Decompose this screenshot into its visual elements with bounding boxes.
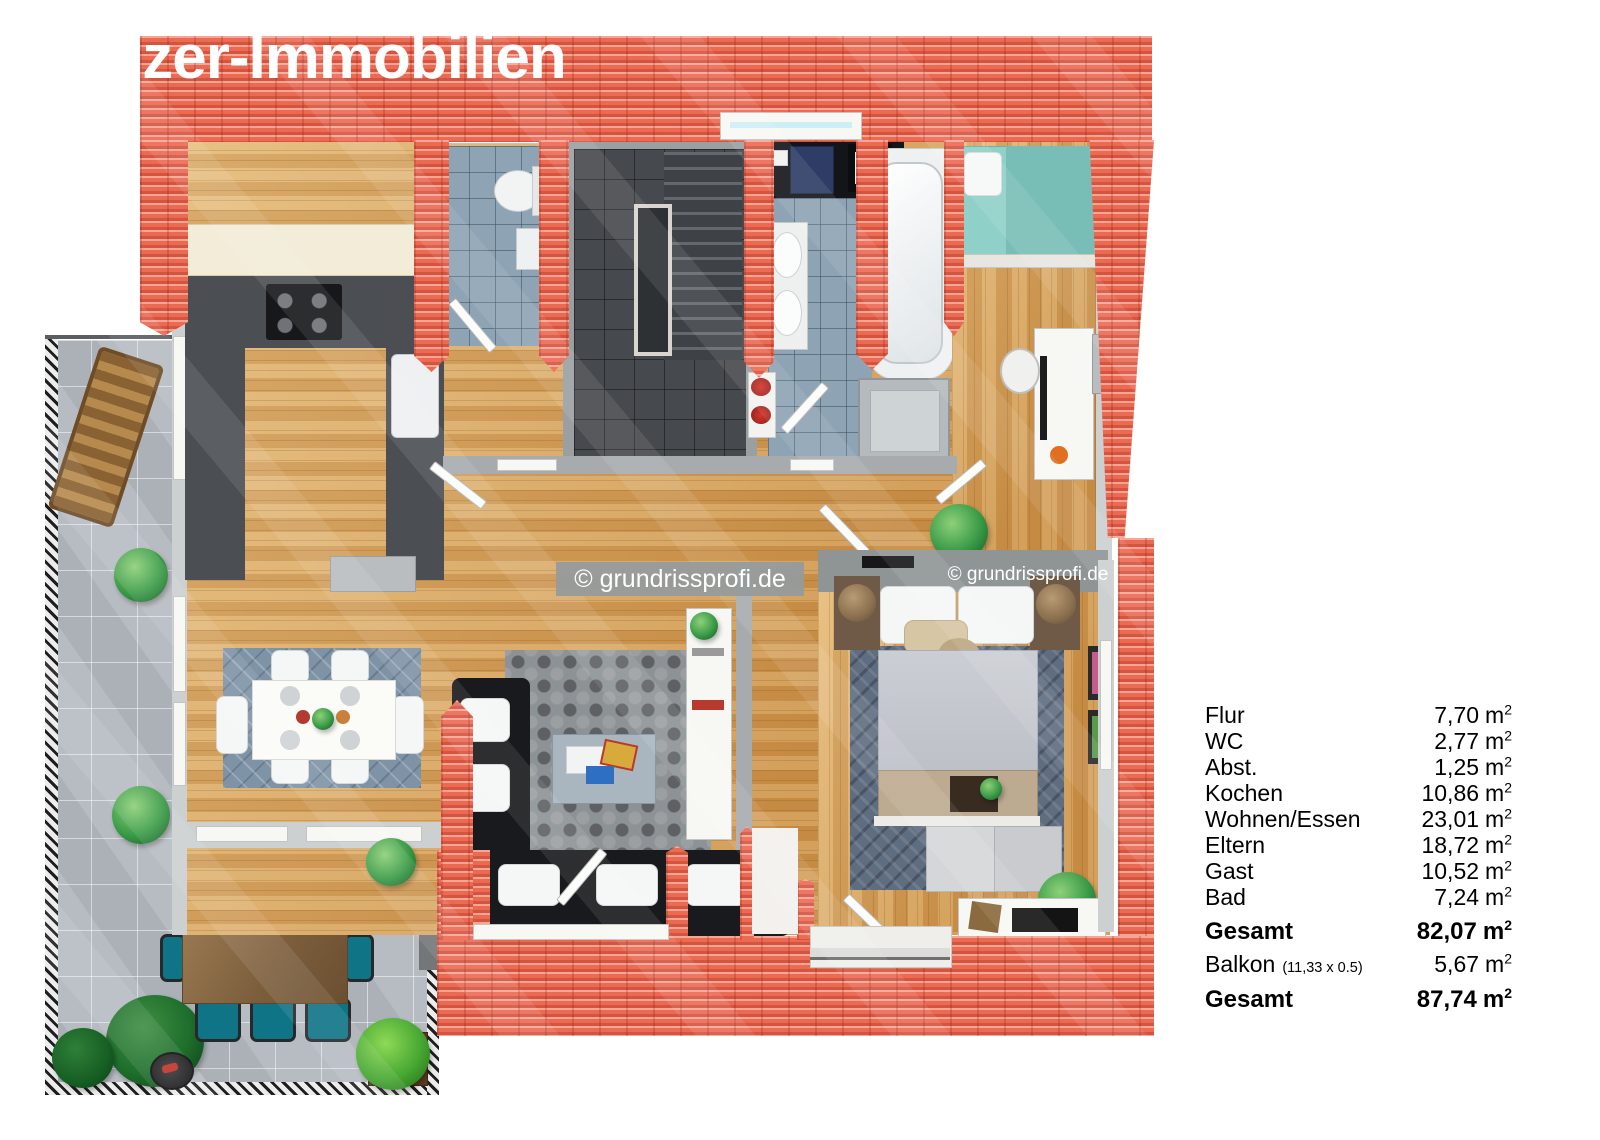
corridor-floor bbox=[752, 828, 798, 934]
roof-window-light bbox=[730, 122, 852, 128]
outdoor-chair bbox=[195, 998, 241, 1042]
washing-machine bbox=[790, 146, 834, 194]
roof-dormer-strip bbox=[666, 846, 688, 940]
area-row: Flur7,70m2 bbox=[1205, 702, 1512, 728]
living-window-sill bbox=[473, 924, 669, 940]
table-decor bbox=[296, 710, 310, 724]
basket bbox=[1036, 584, 1076, 624]
room-area: 10,52m2 bbox=[1421, 858, 1512, 884]
room-area: 7,24m2 bbox=[1434, 884, 1512, 910]
roof-strip bbox=[539, 140, 569, 372]
area-row: Gast10,52m2 bbox=[1205, 858, 1512, 884]
area-row: Abst.1,25m2 bbox=[1205, 754, 1512, 780]
balcony-railing bbox=[810, 948, 950, 960]
total-label: Gesamt bbox=[1205, 987, 1293, 1013]
ottoman bbox=[926, 826, 996, 892]
potted-plant bbox=[114, 548, 168, 602]
roof-strip bbox=[856, 140, 888, 370]
balcony-floor bbox=[810, 926, 952, 968]
wall-tv bbox=[862, 556, 914, 568]
sofa-pillow bbox=[596, 864, 658, 906]
table-plant bbox=[312, 708, 334, 730]
desk-chair bbox=[1000, 348, 1040, 394]
room-area: 1,25m2 bbox=[1434, 754, 1512, 780]
dining-armchair bbox=[392, 696, 424, 754]
room-label: Wohnen/Essen bbox=[1205, 806, 1361, 832]
potted-plant bbox=[52, 1028, 114, 1088]
outdoor-chair bbox=[344, 934, 374, 982]
room-area: 5,67m2 bbox=[1434, 951, 1512, 977]
area-row: Balkon(11,33 x 0.5)5,67m2 bbox=[1205, 951, 1512, 981]
hall-console bbox=[330, 556, 416, 592]
brand-watermark: lzer-Immobilien bbox=[126, 22, 566, 93]
place-setting bbox=[340, 730, 360, 750]
room-label: Bad bbox=[1205, 884, 1246, 910]
roof-left bbox=[140, 140, 188, 336]
door-opening bbox=[790, 459, 834, 471]
room-label: Abst. bbox=[1205, 754, 1257, 780]
sofa-pillow bbox=[498, 864, 560, 906]
table-decor bbox=[336, 710, 350, 724]
kitchen-cabinet-left bbox=[185, 348, 245, 580]
copyright-watermark: © grundrissprofi.de bbox=[946, 560, 1110, 590]
stair-void bbox=[634, 204, 672, 356]
flowers bbox=[751, 406, 771, 424]
room-label: Kochen bbox=[1205, 780, 1283, 806]
stair-steps bbox=[664, 152, 742, 360]
place-setting bbox=[280, 686, 300, 706]
roof-strip bbox=[744, 140, 774, 378]
room-label: WC bbox=[1205, 728, 1243, 754]
guest-bed-frame bbox=[960, 254, 1096, 268]
area-row-total: Gesamt87,74m2 bbox=[1205, 987, 1512, 1013]
terrace-edge-line bbox=[45, 335, 175, 339]
room-label: Balkon(11,33 x 0.5) bbox=[1205, 951, 1363, 981]
room-area: 2,77m2 bbox=[1434, 728, 1512, 754]
window bbox=[306, 826, 422, 842]
shower-tray bbox=[870, 390, 940, 452]
bed-blanket bbox=[878, 650, 1038, 784]
dining-armchair bbox=[216, 696, 248, 754]
dining-chair bbox=[271, 650, 309, 684]
roof-right-band bbox=[1118, 538, 1154, 940]
cooktop bbox=[266, 284, 342, 340]
flowers bbox=[751, 378, 771, 396]
roof-bottom bbox=[437, 936, 1154, 1036]
dining-chair bbox=[331, 650, 369, 684]
room-area: 10,86m2 bbox=[1421, 780, 1512, 806]
sofa-pillow bbox=[686, 864, 746, 906]
room-area: 23,01m2 bbox=[1421, 806, 1512, 832]
place-setting bbox=[340, 686, 360, 706]
terrace-railing-left bbox=[45, 338, 58, 1095]
outdoor-chair bbox=[305, 998, 351, 1042]
window bbox=[196, 826, 288, 842]
deco-box bbox=[968, 901, 1002, 933]
window bbox=[1100, 640, 1112, 770]
copyright-watermark-text: © grundrissprofi.de bbox=[574, 565, 786, 594]
room-label: Eltern bbox=[1205, 832, 1265, 858]
guest-bed-blanket bbox=[1006, 146, 1094, 258]
copyright-watermark-text: © grundrissprofi.de bbox=[948, 564, 1109, 586]
bath-sink bbox=[772, 290, 802, 336]
bath-sink bbox=[772, 232, 802, 278]
laptop bbox=[1012, 908, 1078, 932]
area-row: Wohnen/Essen23,01m2 bbox=[1205, 806, 1512, 832]
total-area: 82,07m2 bbox=[1417, 919, 1512, 945]
copyright-watermark: © grundrissprofi.de bbox=[556, 562, 804, 596]
bed-frame bbox=[874, 816, 1040, 826]
magazine bbox=[586, 766, 614, 784]
place-setting bbox=[280, 730, 300, 750]
window bbox=[173, 702, 186, 786]
area-row: WC2,77m2 bbox=[1205, 728, 1512, 754]
room-label: Gast bbox=[1205, 858, 1254, 884]
potted-plant bbox=[356, 1018, 430, 1090]
area-row-total: Gesamt82,07m2 bbox=[1205, 919, 1512, 945]
area-row: Eltern18,72m2 bbox=[1205, 832, 1512, 858]
roof-dormer-strip bbox=[441, 700, 473, 940]
outdoor-chair bbox=[250, 998, 296, 1042]
area-row: Bad7,24m2 bbox=[1205, 884, 1512, 910]
room-area: 7,70m2 bbox=[1434, 702, 1512, 728]
shelf-plant bbox=[690, 612, 718, 640]
room-label: Flur bbox=[1205, 702, 1245, 728]
roof-strip bbox=[944, 140, 964, 336]
area-row: Kochen10,86m2 bbox=[1205, 780, 1512, 806]
potted-plant bbox=[366, 838, 416, 886]
tv-shelf bbox=[686, 608, 732, 840]
potted-plant bbox=[112, 786, 170, 844]
basket bbox=[838, 584, 876, 622]
shelf-decor bbox=[692, 700, 724, 710]
total-area: 87,74m2 bbox=[1417, 987, 1512, 1013]
balcony-note: (11,33 x 0.5) bbox=[1282, 960, 1362, 976]
window bbox=[173, 596, 186, 692]
shelf-decor bbox=[692, 648, 724, 656]
tray-plant bbox=[980, 778, 1002, 800]
kitchen-counter-bar bbox=[185, 224, 433, 276]
guest-bed-pillow bbox=[964, 152, 1002, 196]
total-label: Gesamt bbox=[1205, 919, 1293, 945]
roof-strip bbox=[414, 140, 449, 372]
bed-pillow bbox=[958, 586, 1034, 644]
headphones bbox=[1050, 446, 1068, 464]
room-area: 18,72m2 bbox=[1421, 832, 1512, 858]
desk-monitor bbox=[1040, 356, 1047, 440]
door-opening bbox=[497, 459, 557, 471]
area-table: Flur7,70m2 WC2,77m2 Abst.1,25m2 Kochen10… bbox=[1205, 702, 1512, 1013]
